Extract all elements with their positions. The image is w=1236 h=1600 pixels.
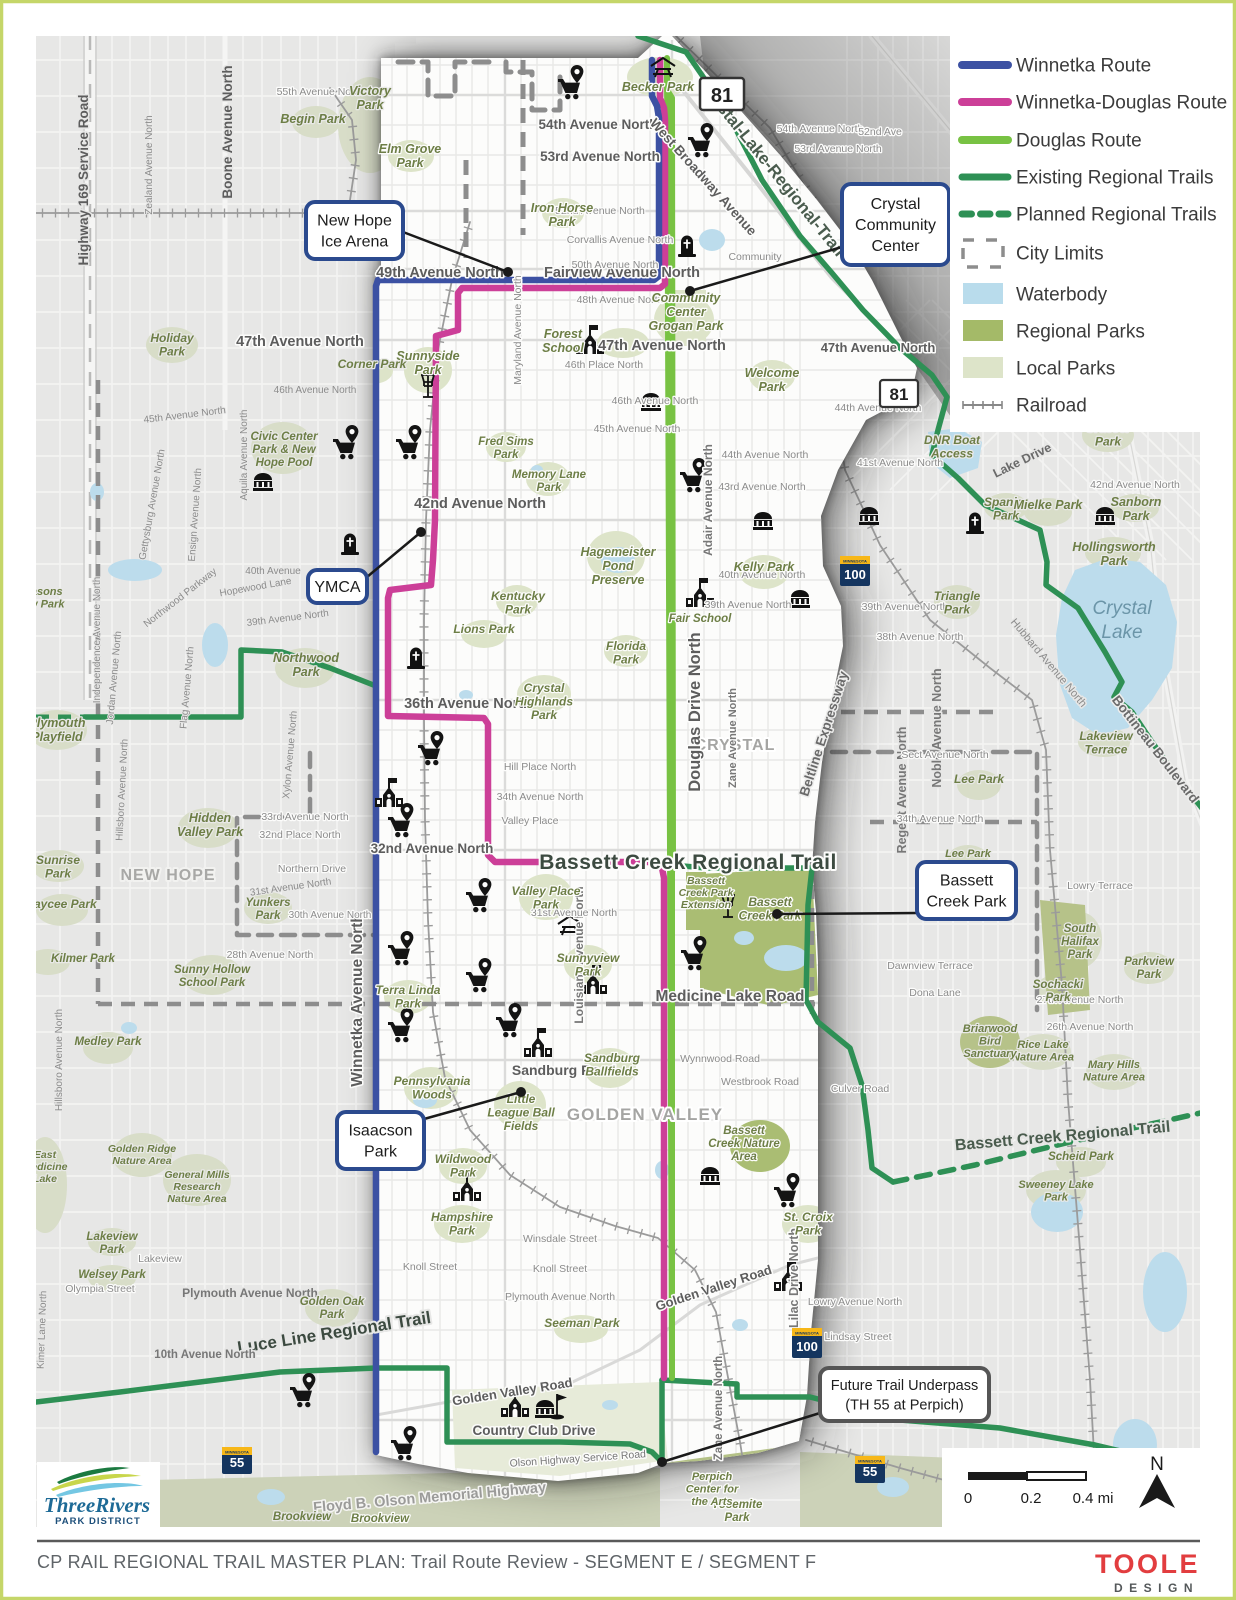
- svg-text:MINNESOTA: MINNESOTA: [795, 1331, 819, 1336]
- svg-text:YMCA: YMCA: [314, 579, 361, 596]
- svg-text:Lindsay Street: Lindsay Street: [824, 1331, 891, 1343]
- svg-text:Westbrook Road: Westbrook Road: [721, 1076, 799, 1088]
- svg-text:Preserve: Preserve: [592, 573, 645, 587]
- svg-text:Knoll Street: Knoll Street: [533, 1263, 587, 1275]
- svg-text:DNR Boat: DNR Boat: [924, 433, 981, 447]
- svg-text:Maryland Avenue North: Maryland Avenue North: [512, 275, 524, 385]
- svg-text:Railroad: Railroad: [1016, 396, 1087, 417]
- svg-text:(TH 55 at Perpich): (TH 55 at Perpich): [845, 1397, 963, 1413]
- svg-text:MINNESOTA: MINNESOTA: [225, 1450, 249, 1455]
- svg-text:Civic Center: Civic Center: [250, 431, 318, 443]
- svg-text:36th Avenue North: 36th Avenue North: [404, 696, 532, 712]
- svg-text:Regional Parks: Regional Parks: [1016, 322, 1145, 343]
- svg-text:Park: Park: [449, 1224, 476, 1238]
- svg-text:Forest: Forest: [544, 327, 583, 341]
- svg-text:Fields: Fields: [504, 1119, 539, 1133]
- svg-text:Douglas Drive North: Douglas Drive North: [686, 632, 704, 792]
- svg-text:32nd Place North: 32nd Place North: [259, 829, 340, 841]
- svg-text:MINNESOTA: MINNESOTA: [858, 1459, 882, 1464]
- svg-text:Grogan Park: Grogan Park: [648, 319, 724, 333]
- svg-text:26th Avenue North: 26th Avenue North: [1047, 1021, 1134, 1033]
- svg-text:Park: Park: [292, 665, 320, 679]
- svg-text:Community: Community: [728, 251, 782, 263]
- svg-text:Hampshire: Hampshire: [431, 1210, 493, 1224]
- svg-text:Perpich: Perpich: [692, 1471, 733, 1483]
- svg-text:Culver Road: Culver Road: [831, 1083, 890, 1095]
- svg-text:Jaycee Park: Jaycee Park: [27, 897, 98, 911]
- svg-text:Park: Park: [1137, 969, 1163, 981]
- svg-text:Becker Park: Becker Park: [622, 80, 695, 94]
- svg-text:Scheid Park: Scheid Park: [1048, 1151, 1114, 1163]
- svg-text:Park: Park: [450, 1166, 477, 1180]
- svg-text:Park: Park: [396, 156, 424, 170]
- svg-text:Center for: Center for: [686, 1484, 739, 1496]
- svg-text:Lowry Avenue North: Lowry Avenue North: [808, 1296, 903, 1308]
- svg-text:46th Avenue North: 46th Avenue North: [274, 385, 357, 396]
- svg-text:100: 100: [796, 1339, 818, 1354]
- svg-text:Kentucky: Kentucky: [491, 589, 546, 603]
- svg-text:53rd Avenue North: 53rd Avenue North: [794, 143, 882, 155]
- svg-text:Research: Research: [173, 1181, 220, 1193]
- svg-text:28th Avenue North: 28th Avenue North: [227, 949, 314, 961]
- svg-text:Corvallis Avenue North: Corvallis Avenue North: [567, 234, 674, 246]
- svg-text:42nd Avenue North: 42nd Avenue North: [414, 496, 546, 512]
- svg-text:Woods: Woods: [412, 1088, 452, 1102]
- svg-text:Existing Regional Trails: Existing Regional Trails: [1016, 168, 1213, 189]
- svg-text:32nd Avenue North: 32nd Avenue North: [371, 841, 494, 856]
- svg-text:Park: Park: [725, 1512, 751, 1524]
- svg-text:Triangle: Triangle: [934, 589, 981, 603]
- svg-text:School: School: [542, 341, 584, 355]
- svg-text:Park: Park: [1095, 435, 1122, 449]
- svg-text:0: 0: [964, 1490, 972, 1507]
- svg-text:Park: Park: [1122, 509, 1150, 523]
- svg-text:Wynnwood Road: Wynnwood Road: [680, 1053, 760, 1065]
- svg-text:Sandburg: Sandburg: [584, 1051, 641, 1065]
- svg-text:Corner Park: Corner Park: [338, 357, 408, 371]
- svg-text:Sochacki: Sochacki: [1033, 979, 1084, 991]
- svg-text:Crystal: Crystal: [524, 681, 565, 695]
- svg-text:Northwood: Northwood: [273, 651, 339, 665]
- svg-text:Park: Park: [795, 1224, 822, 1238]
- svg-text:Country Club Drive: Country Club Drive: [472, 1423, 596, 1438]
- svg-text:55: 55: [230, 1455, 244, 1470]
- svg-text:Hill Place North: Hill Place North: [504, 761, 577, 773]
- svg-text:Briarwood: Briarwood: [963, 1023, 1018, 1035]
- svg-text:Sweeney Lake: Sweeney Lake: [1018, 1179, 1093, 1191]
- svg-text:Bassett: Bassett: [748, 895, 792, 909]
- svg-text:Hope Pool: Hope Pool: [256, 457, 314, 469]
- svg-text:54th Avenue North: 54th Avenue North: [777, 123, 864, 135]
- svg-text:Local Parks: Local Parks: [1016, 359, 1115, 380]
- svg-text:42nd Avenue North: 42nd Avenue North: [1090, 479, 1180, 491]
- svg-text:Noble Avenue North: Noble Avenue North: [930, 668, 944, 787]
- svg-text:Medley Park: Medley Park: [74, 1036, 142, 1048]
- svg-text:Park: Park: [758, 380, 786, 394]
- svg-text:Crystal: Crystal: [871, 196, 921, 213]
- svg-text:Parkview: Parkview: [1124, 956, 1175, 968]
- svg-text:Mielke Park: Mielke Park: [1014, 498, 1084, 512]
- svg-text:0.2: 0.2: [1021, 1490, 1042, 1507]
- svg-text:League Ball: League Ball: [487, 1106, 555, 1120]
- svg-text:Park & New: Park & New: [252, 444, 316, 456]
- svg-text:Sanctuary: Sanctuary: [963, 1048, 1017, 1060]
- svg-text:Brookview: Brookview: [273, 1511, 332, 1523]
- svg-text:Begin Park: Begin Park: [280, 112, 346, 126]
- svg-text:Park: Park: [944, 603, 971, 617]
- svg-text:Mary Hills: Mary Hills: [1088, 1059, 1140, 1071]
- svg-text:Park: Park: [575, 965, 602, 979]
- svg-text:Park: Park: [356, 98, 384, 112]
- svg-text:30th Avenue North: 30th Avenue North: [289, 910, 372, 921]
- svg-text:Pennsylvania: Pennsylvania: [394, 1074, 471, 1088]
- svg-text:New Hope: New Hope: [317, 213, 392, 230]
- svg-text:81: 81: [890, 385, 909, 404]
- svg-text:Pond: Pond: [602, 559, 634, 573]
- svg-text:46th Avenue North: 46th Avenue North: [612, 395, 699, 407]
- svg-text:47th Avenue North: 47th Avenue North: [236, 334, 364, 350]
- svg-text:Center: Center: [871, 238, 920, 255]
- svg-text:Hillsboro Avenue North: Hillsboro Avenue North: [54, 1009, 65, 1111]
- svg-text:39th Avenue North: 39th Avenue North: [705, 599, 792, 611]
- svg-text:City Limits: City Limits: [1016, 244, 1104, 265]
- svg-text:Creek Nature: Creek Nature: [708, 1138, 780, 1150]
- svg-text:Winnetka-Douglas Route: Winnetka-Douglas Route: [1016, 93, 1227, 114]
- svg-text:Lowry Terrace: Lowry Terrace: [1067, 880, 1133, 892]
- svg-text:Creek Park: Creek Park: [739, 909, 803, 923]
- svg-text:Golden Oak: Golden Oak: [300, 1296, 365, 1308]
- svg-text:Park: Park: [256, 910, 282, 922]
- svg-text:Park: Park: [1100, 554, 1128, 568]
- svg-text:Aquila Avenue North: Aquila Avenue North: [239, 410, 250, 501]
- svg-text:Playfield: Playfield: [31, 730, 83, 744]
- svg-text:55: 55: [863, 1464, 877, 1479]
- svg-text:Park: Park: [1044, 1192, 1069, 1204]
- svg-text:Park: Park: [1068, 949, 1094, 961]
- svg-text:33rd Avenue North: 33rd Avenue North: [261, 811, 349, 823]
- svg-text:Independence Avenue North: Independence Avenue North: [92, 577, 103, 704]
- svg-text:School Park: School Park: [179, 977, 246, 989]
- svg-text:Winnetka Route: Winnetka Route: [1016, 56, 1151, 77]
- svg-text:Isaacson: Isaacson: [348, 1123, 412, 1140]
- svg-text:Sunnyview: Sunnyview: [557, 951, 620, 965]
- svg-text:South: South: [1064, 923, 1097, 935]
- svg-text:Bassett: Bassett: [687, 875, 725, 887]
- svg-text:34th Avenue North: 34th Avenue North: [897, 813, 984, 825]
- svg-text:Future Trail Underpass: Future Trail Underpass: [831, 1378, 978, 1394]
- svg-text:Nature Area: Nature Area: [1012, 1052, 1074, 1064]
- svg-text:Terra Linda: Terra Linda: [376, 983, 441, 997]
- svg-text:Rice Lake: Rice Lake: [1017, 1039, 1068, 1051]
- svg-text:Lions Park: Lions Park: [453, 622, 516, 636]
- svg-text:Nature Area: Nature Area: [112, 1155, 171, 1167]
- svg-text:38th Avenue North: 38th Avenue North: [877, 631, 964, 643]
- svg-text:Golden Ridge: Golden Ridge: [108, 1143, 176, 1155]
- svg-text:Lake: Lake: [1101, 622, 1142, 643]
- svg-text:Adair Avenue North: Adair Avenue North: [701, 444, 715, 556]
- svg-text:Regent Avenue North: Regent Avenue North: [895, 727, 909, 854]
- svg-text:Park: Park: [45, 867, 72, 881]
- svg-text:47th Avenue North: 47th Avenue North: [821, 340, 936, 355]
- svg-text:Park: Park: [414, 363, 442, 377]
- svg-text:Plymouth Avenue North: Plymouth Avenue North: [505, 1291, 615, 1303]
- svg-text:Knoll Street: Knoll Street: [403, 1261, 457, 1273]
- svg-text:10th Avenue North: 10th Avenue North: [154, 1349, 255, 1361]
- svg-text:Sunny Hollow: Sunny Hollow: [174, 964, 251, 976]
- svg-text:Sect Avenue North: Sect Avenue North: [901, 749, 989, 761]
- svg-text:St. Croix: St. Croix: [783, 1210, 834, 1224]
- svg-text:Northern Drive: Northern Drive: [278, 863, 346, 875]
- svg-text:Welcome: Welcome: [745, 366, 800, 380]
- svg-text:Park: Park: [548, 215, 576, 229]
- svg-text:East: East: [34, 1149, 57, 1161]
- svg-text:Lee Park: Lee Park: [945, 848, 992, 860]
- svg-text:the Arts: the Arts: [691, 1496, 732, 1508]
- svg-text:Valley Place: Valley Place: [501, 815, 558, 827]
- svg-text:100: 100: [844, 567, 866, 582]
- svg-text:Highlands: Highlands: [515, 695, 573, 709]
- svg-text:Hollingsworth: Hollingsworth: [1072, 540, 1156, 554]
- svg-text:PARK DISTRICT: PARK DISTRICT: [55, 1516, 141, 1527]
- svg-text:Park: Park: [1046, 992, 1072, 1004]
- svg-text:Winsdale Street: Winsdale Street: [523, 1233, 597, 1245]
- svg-text:Highway 169 Service Road: Highway 169 Service Road: [76, 94, 91, 265]
- svg-text:Welsey Park: Welsey Park: [78, 1269, 146, 1281]
- svg-text:Valley Park: Valley Park: [177, 825, 244, 839]
- svg-text:Lilac Drive North: Lilac Drive North: [787, 1228, 801, 1328]
- svg-text:Boone Avenue North: Boone Avenue North: [220, 65, 235, 198]
- svg-text:Memory Lane: Memory Lane: [512, 469, 587, 481]
- svg-text:Waterbody: Waterbody: [1016, 285, 1108, 306]
- svg-text:Kelly Park: Kelly Park: [734, 560, 796, 574]
- svg-text:DESIGN: DESIGN: [1114, 1581, 1199, 1595]
- svg-text:N: N: [1150, 1454, 1164, 1475]
- svg-text:Bassett Creek Regional Trail: Bassett Creek Regional Trail: [539, 851, 837, 874]
- svg-text:Center: Center: [666, 305, 707, 319]
- svg-text:Extension: Extension: [681, 899, 731, 911]
- svg-text:Victory: Victory: [349, 84, 392, 98]
- svg-text:Park: Park: [537, 482, 563, 494]
- svg-text:Hagemeister: Hagemeister: [580, 545, 656, 559]
- svg-text:Ballfields: Ballfields: [585, 1065, 639, 1079]
- svg-text:53rd Avenue North: 53rd Avenue North: [540, 149, 660, 164]
- svg-text:Park: Park: [364, 1144, 398, 1161]
- svg-text:Creek Park: Creek Park: [679, 887, 735, 899]
- svg-text:43rd Avenue North: 43rd Avenue North: [718, 481, 806, 493]
- svg-text:Park: Park: [505, 603, 532, 617]
- svg-text:Dawnview Terrace: Dawnview Terrace: [887, 960, 973, 972]
- svg-text:Seeman Park: Seeman Park: [544, 1316, 621, 1330]
- svg-text:Park: Park: [531, 708, 558, 722]
- svg-text:Bassett: Bassett: [940, 873, 994, 890]
- svg-text:Elm Grove: Elm Grove: [379, 142, 442, 156]
- svg-text:Zane Avenue North: Zane Avenue North: [727, 688, 739, 788]
- svg-text:Park: Park: [100, 1244, 126, 1256]
- svg-text:Plymouth: Plymouth: [29, 716, 86, 730]
- svg-text:Douglas Route: Douglas Route: [1016, 131, 1142, 152]
- svg-text:Park: Park: [613, 653, 640, 667]
- svg-text:Hidden: Hidden: [189, 811, 232, 825]
- svg-text:Florida: Florida: [606, 639, 646, 653]
- svg-text:ThreeRivers: ThreeRivers: [44, 1493, 150, 1517]
- svg-text:Brookview: Brookview: [351, 1513, 410, 1525]
- svg-text:40th Avenue: 40th Avenue: [245, 566, 301, 577]
- svg-text:Park: Park: [494, 449, 520, 461]
- svg-text:MINNESOTA: MINNESOTA: [843, 559, 867, 564]
- svg-text:Dona Lane: Dona Lane: [909, 987, 961, 999]
- svg-text:Iron Horse: Iron Horse: [531, 201, 594, 215]
- svg-text:Plymouth Avenue North: Plymouth Avenue North: [182, 1286, 318, 1300]
- svg-text:49th Avenue North: 49th Avenue North: [376, 265, 504, 281]
- svg-text:Terrace: Terrace: [1085, 743, 1128, 757]
- svg-text:48th Avenue North: 48th Avenue North: [577, 294, 664, 306]
- svg-text:Access: Access: [930, 447, 973, 461]
- svg-text:CP RAIL REGIONAL TRAIL MASTER: CP RAIL REGIONAL TRAIL MASTER PLAN: Trai…: [37, 1552, 816, 1572]
- svg-text:Park: Park: [159, 345, 186, 359]
- svg-text:Kilmer Park: Kilmer Park: [51, 953, 116, 965]
- svg-text:Park: Park: [533, 898, 560, 912]
- svg-text:54th Avenue North: 54th Avenue North: [538, 117, 657, 132]
- svg-text:44th Avenue North: 44th Avenue North: [722, 449, 809, 461]
- svg-text:Zealand Avenue North: Zealand Avenue North: [144, 115, 155, 214]
- svg-text:52nd Ave: 52nd Ave: [858, 126, 902, 138]
- svg-text:Lee Park: Lee Park: [954, 772, 1005, 786]
- svg-text:Bassett: Bassett: [723, 1125, 766, 1137]
- svg-text:Lakeview: Lakeview: [1079, 729, 1133, 743]
- svg-text:Nature Area: Nature Area: [167, 1193, 226, 1205]
- svg-text:Medicine Lake Road: Medicine Lake Road: [655, 988, 804, 1005]
- svg-text:Crystal: Crystal: [1092, 598, 1152, 619]
- svg-text:Sunrise: Sunrise: [36, 853, 80, 867]
- svg-text:Creek Park: Creek Park: [926, 894, 1007, 911]
- svg-text:34th Avenue North: 34th Avenue North: [497, 791, 584, 803]
- svg-text:Community: Community: [855, 217, 936, 234]
- svg-text:Fred Sims: Fred Sims: [478, 436, 534, 448]
- svg-text:Park: Park: [320, 1309, 346, 1321]
- svg-text:Wildwood: Wildwood: [435, 1152, 492, 1166]
- svg-text:Lakeview: Lakeview: [86, 1231, 138, 1243]
- svg-text:81: 81: [711, 85, 733, 107]
- svg-text:50th Avenue North: 50th Avenue North: [572, 259, 659, 271]
- svg-text:Nature Area: Nature Area: [1083, 1072, 1145, 1084]
- svg-text:Winnetka Avenue North: Winnetka Avenue North: [349, 913, 366, 1087]
- svg-text:Olympia Street: Olympia Street: [65, 1283, 135, 1295]
- svg-text:Fair School: Fair School: [669, 613, 732, 625]
- svg-text:Sanborn: Sanborn: [1111, 495, 1162, 509]
- svg-text:GOLDEN VALLEY: GOLDEN VALLEY: [567, 1105, 723, 1124]
- svg-text:47th Avenue North: 47th Avenue North: [598, 338, 726, 354]
- svg-text:General Mills: General Mills: [164, 1169, 230, 1181]
- svg-text:Ice Arena: Ice Arena: [321, 234, 389, 251]
- svg-text:Lake: Lake: [33, 1173, 57, 1185]
- svg-text:Planned Regional Trails: Planned Regional Trails: [1016, 205, 1217, 226]
- svg-text:0.4 mi: 0.4 mi: [1073, 1490, 1114, 1507]
- svg-text:Valley Place: Valley Place: [512, 884, 581, 898]
- svg-text:Area: Area: [730, 1151, 757, 1163]
- svg-text:Park: Park: [395, 997, 422, 1011]
- svg-text:46th Place North: 46th Place North: [565, 359, 643, 371]
- svg-text:45th Avenue North: 45th Avenue North: [594, 423, 681, 435]
- svg-text:Yunkers: Yunkers: [246, 897, 291, 909]
- svg-text:Holiday: Holiday: [150, 331, 195, 345]
- svg-text:Lakeview: Lakeview: [138, 1253, 182, 1265]
- svg-text:TOOLE: TOOLE: [1095, 1549, 1200, 1579]
- svg-text:Halifax: Halifax: [1061, 936, 1099, 948]
- svg-text:Bird: Bird: [979, 1036, 1001, 1048]
- svg-text:NEW HOPE: NEW HOPE: [120, 867, 215, 884]
